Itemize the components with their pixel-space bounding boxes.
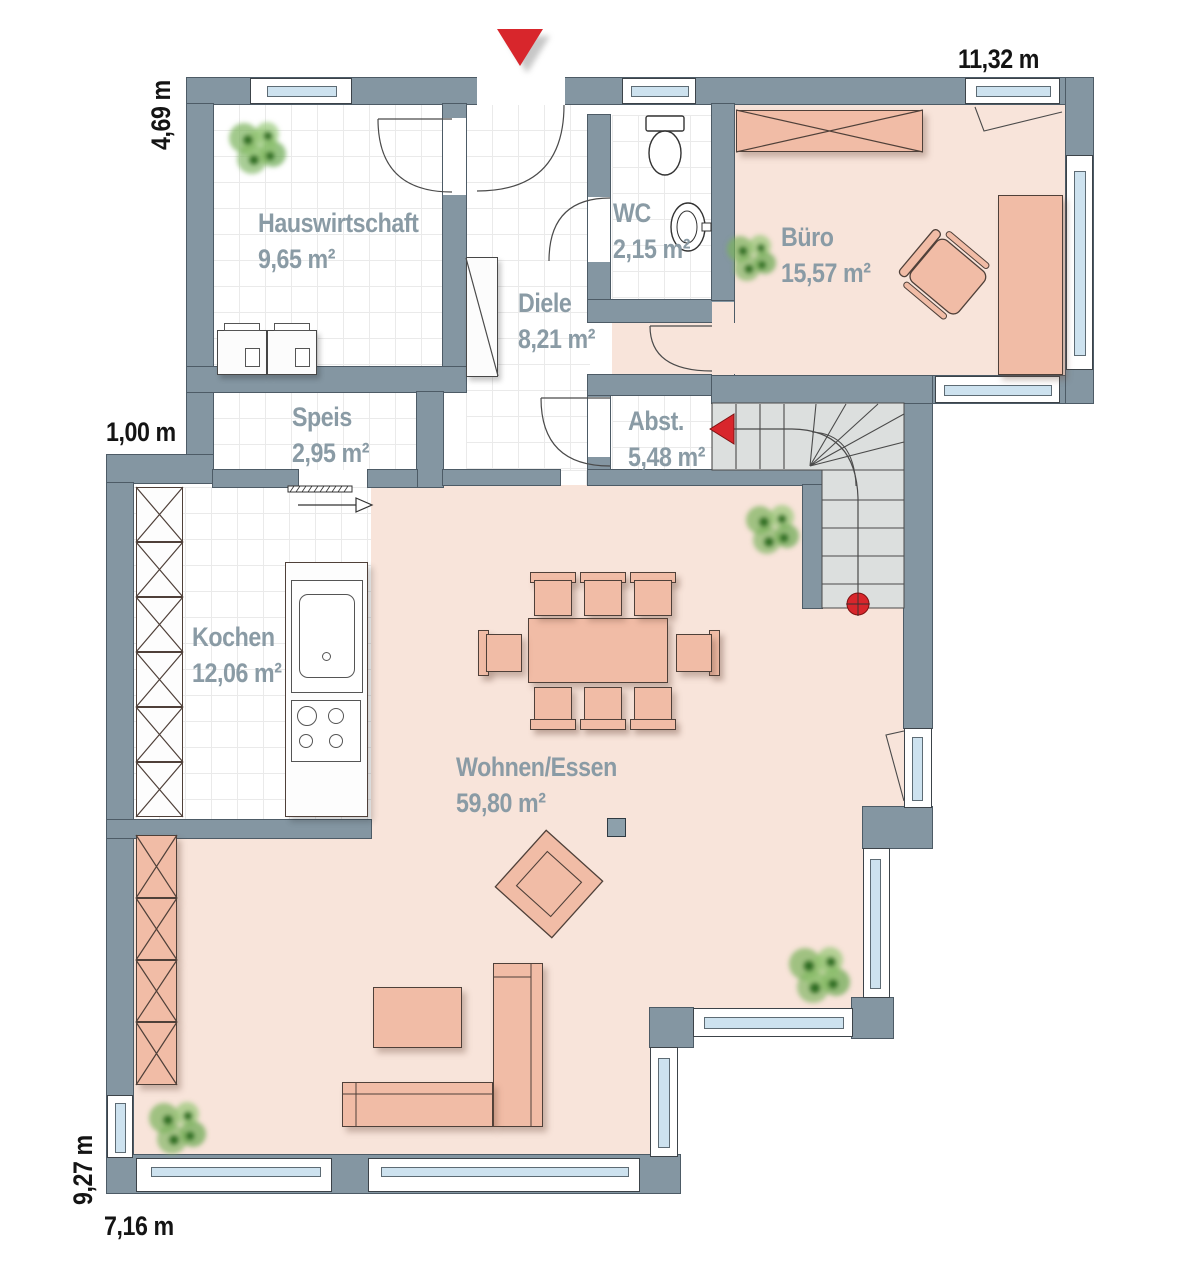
window-glass — [976, 86, 1051, 97]
kitchen-cabinet — [136, 652, 183, 707]
kitchen-cabinet — [136, 542, 183, 597]
wall — [650, 1008, 693, 1047]
sofa — [493, 963, 543, 1127]
dining-table — [528, 618, 668, 683]
staircase — [822, 470, 904, 608]
room-name: Kochen — [192, 622, 275, 652]
room-label-wc: WC 2,15 m² — [613, 196, 690, 267]
wall — [417, 392, 443, 487]
room-area: 59,80 m² — [456, 786, 617, 822]
faucet — [322, 652, 331, 661]
window — [1066, 155, 1093, 370]
room-name: Abst. — [628, 406, 684, 436]
door-opening — [588, 197, 610, 262]
chair — [634, 687, 672, 723]
room-area: 12,06 m² — [192, 656, 282, 692]
window — [650, 1047, 678, 1157]
room-area: 8,21 m² — [518, 322, 595, 358]
room-area: 15,57 m² — [781, 256, 871, 292]
door-opening — [712, 302, 734, 375]
room-label-buero: Büro 15,57 m² — [781, 220, 871, 291]
shelf-unit — [136, 898, 177, 960]
chair — [584, 687, 622, 723]
window-glass — [870, 859, 881, 989]
chair — [676, 634, 712, 672]
burner — [299, 734, 313, 748]
room-label-diele: Diele 8,21 m² — [518, 286, 595, 357]
room-name: Hauswirtschaft — [258, 208, 418, 238]
desk — [998, 195, 1063, 375]
burner — [297, 706, 317, 726]
dimension-left-lower: 9,27 m — [68, 1135, 99, 1205]
wall — [368, 470, 417, 487]
kitchen-sink — [299, 594, 355, 678]
chair — [534, 580, 572, 616]
chair — [580, 719, 626, 730]
window — [107, 1095, 133, 1158]
window — [368, 1158, 640, 1192]
wall — [712, 104, 734, 300]
room-name: Wohnen/Essen — [456, 752, 617, 782]
chair — [634, 580, 672, 616]
room-label-wohnen-essen: Wohnen/Essen 59,80 m² — [456, 750, 617, 821]
wall — [213, 470, 298, 487]
kitchen-cabinet — [136, 597, 183, 652]
window — [904, 728, 932, 808]
window-glass — [1074, 171, 1086, 356]
shelf-unit — [136, 1022, 177, 1085]
door-opening — [443, 118, 466, 195]
shelf-unit — [136, 835, 177, 898]
window — [965, 78, 1060, 104]
dryer-detail — [295, 348, 310, 367]
wall — [803, 485, 822, 608]
dimension-bottom: 7,16 m — [104, 1211, 174, 1242]
staircase — [712, 403, 904, 470]
room-label-hauswirtschaft: Hauswirtschaft 9,65 m² — [258, 206, 418, 277]
room-name: WC — [613, 198, 651, 228]
dryer-detail — [274, 323, 310, 331]
room-name: Diele — [518, 288, 571, 318]
window-glass — [115, 1103, 126, 1153]
window — [863, 848, 890, 998]
window — [250, 78, 352, 104]
room-area: 9,65 m² — [258, 242, 418, 278]
shelf-unit — [136, 960, 177, 1022]
room-name: Büro — [781, 222, 833, 252]
wardrobe — [466, 257, 498, 377]
dimension-left-step: 1,00 m — [106, 417, 176, 448]
window — [935, 376, 1060, 403]
door-opening — [588, 397, 610, 457]
kitchen-cabinet — [136, 487, 183, 542]
room-label-speis: Speis 2,95 m² — [292, 400, 369, 471]
wall — [863, 807, 932, 848]
window — [693, 1008, 853, 1037]
wall — [107, 455, 213, 483]
window — [136, 1158, 332, 1192]
window-glass — [151, 1167, 321, 1177]
entrance-marker-icon — [497, 29, 550, 73]
window-glass — [658, 1058, 670, 1148]
washing-machine-detail — [224, 323, 260, 331]
room-name: Speis — [292, 402, 352, 432]
dimension-left-upper: 4,69 m — [146, 80, 177, 150]
kitchen-cabinet — [136, 707, 183, 762]
dimension-top: 11,32 m — [958, 44, 1039, 75]
coffee-table — [373, 987, 462, 1048]
wall — [107, 483, 133, 1193]
window-glass — [704, 1017, 844, 1029]
wall — [712, 376, 932, 403]
burner — [328, 708, 344, 724]
room-label-kochen: Kochen 12,06 m² — [192, 620, 282, 691]
room-area: 2,95 m² — [292, 436, 369, 472]
burner — [329, 734, 343, 748]
chair — [584, 580, 622, 616]
sideboard — [736, 110, 923, 152]
sofa — [342, 1082, 493, 1127]
room-area: 5,48 m² — [628, 440, 705, 476]
room-area: 2,15 m² — [613, 232, 690, 268]
entrance-opening — [477, 77, 565, 105]
floor-plan-canvas: Hauswirtschaft 9,65 m² WC 2,15 m² Büro 1… — [0, 0, 1200, 1280]
room-label-abstellraum: Abst. 5,48 m² — [628, 404, 705, 475]
window-glass — [267, 86, 337, 97]
wall — [852, 998, 893, 1038]
washing-machine-detail — [245, 348, 260, 367]
wall — [904, 390, 932, 728]
chair — [530, 719, 576, 730]
kitchen-cabinet — [136, 762, 183, 817]
window-glass — [944, 385, 1052, 396]
chair — [534, 687, 572, 723]
window-glass — [912, 737, 923, 801]
wall — [443, 470, 560, 485]
wall — [187, 104, 213, 460]
window-glass — [631, 86, 689, 97]
window — [622, 78, 696, 104]
floor-nook — [612, 322, 712, 375]
window-glass — [381, 1167, 629, 1177]
floor-passage — [560, 470, 588, 485]
chair — [630, 719, 676, 730]
chair — [486, 634, 522, 672]
